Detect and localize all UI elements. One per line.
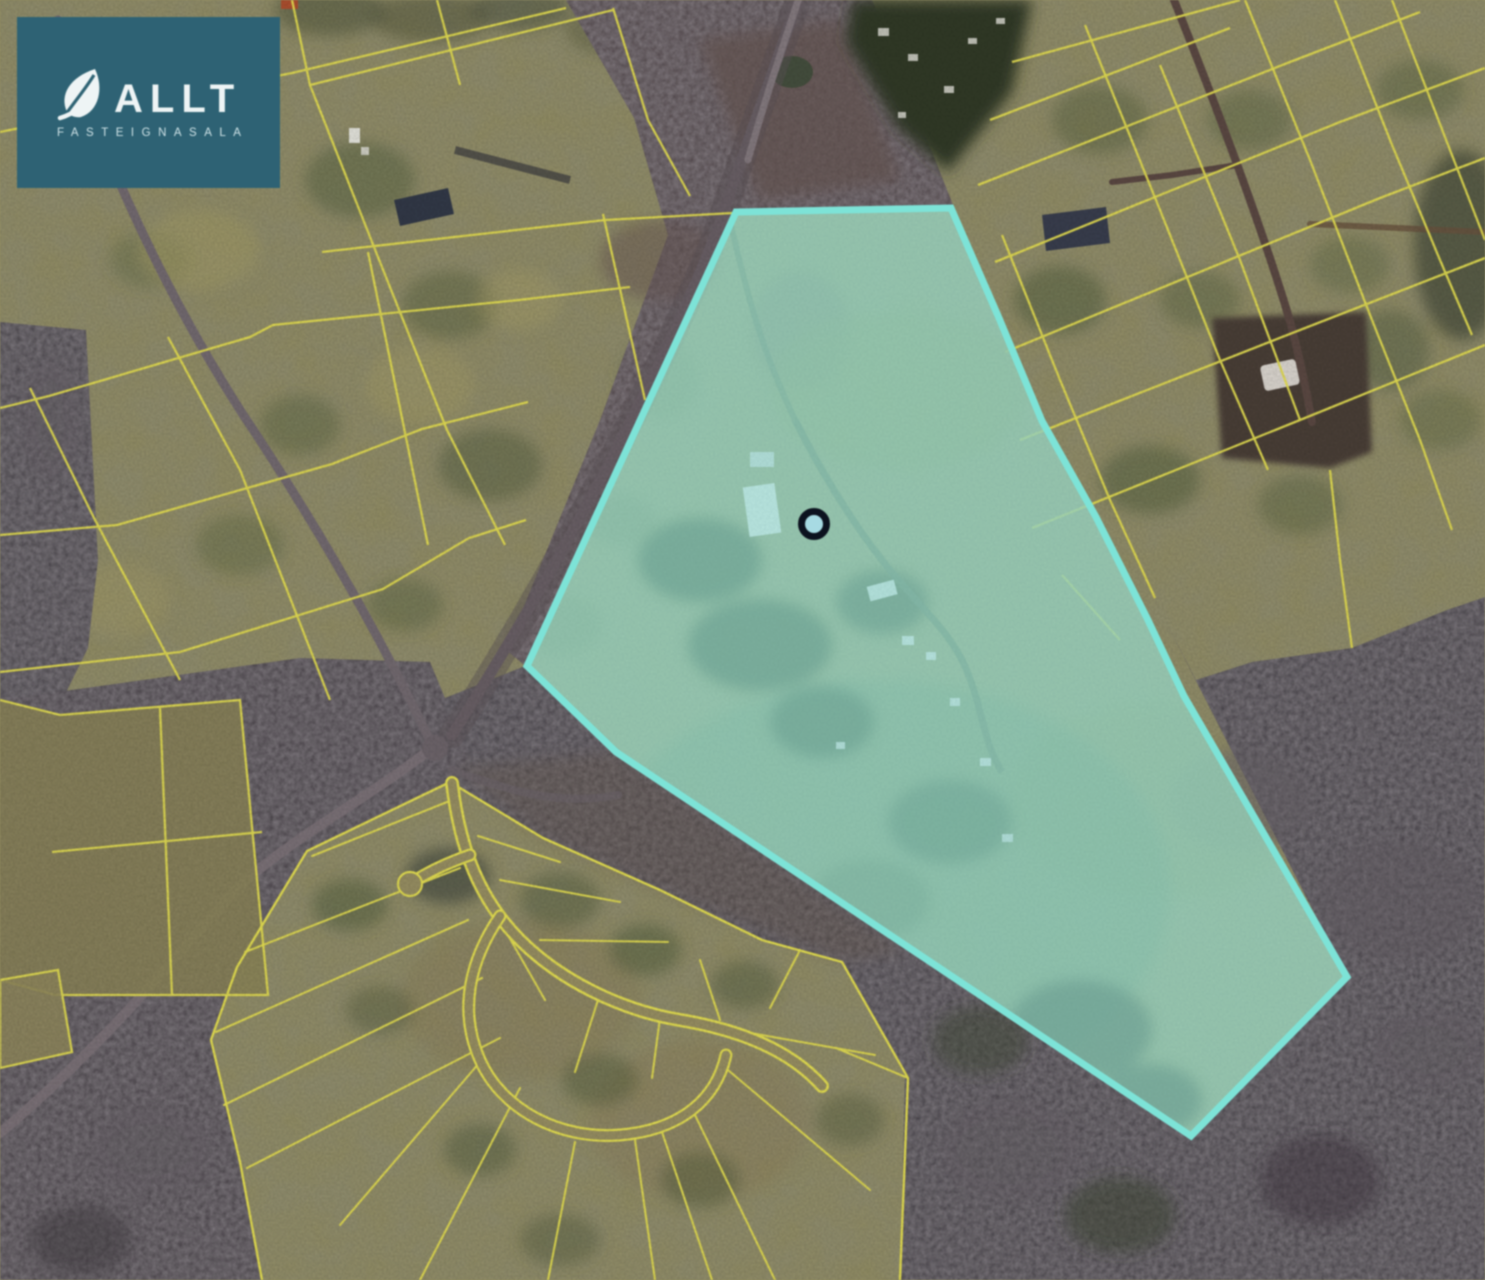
svg-text:ALLT: ALLT	[114, 77, 241, 121]
svg-text:FASTEIGNASALA: FASTEIGNASALA	[57, 127, 248, 139]
